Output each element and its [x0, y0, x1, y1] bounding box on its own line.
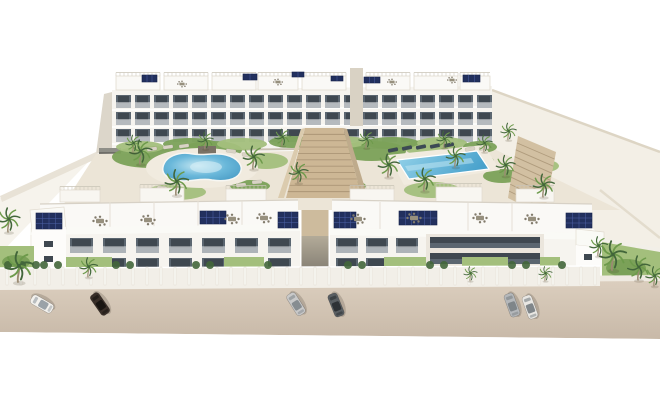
palm-crown-center	[470, 272, 472, 274]
window-opening	[384, 113, 395, 120]
balcony-balustrade	[287, 102, 302, 108]
terrace-chair	[408, 213, 410, 215]
palm-crown-center	[387, 163, 390, 166]
balcony-balustrade	[306, 102, 321, 108]
window-opening	[156, 113, 167, 120]
terrace-chair	[147, 223, 149, 225]
window-opening	[270, 113, 281, 120]
roof-terrace	[332, 200, 592, 233]
window-opening	[171, 259, 190, 268]
window-opening	[289, 113, 300, 120]
balcony-balustrade	[230, 102, 245, 108]
terrace-chair	[226, 214, 228, 216]
solar-panel	[142, 75, 157, 82]
balcony-balustrade	[363, 119, 378, 125]
terrace-chair	[395, 81, 397, 83]
palm-crown-center	[366, 138, 368, 140]
balcony-balustrade	[458, 102, 473, 108]
palm-crown-center	[7, 218, 10, 221]
palm-shadow	[468, 281, 474, 283]
terrace-chair	[277, 84, 279, 86]
window-opening	[479, 113, 490, 120]
fence-pillar	[370, 267, 372, 285]
balcony-balustrade	[169, 246, 192, 253]
balcony-balustrade	[366, 246, 388, 253]
fence-pillar	[76, 267, 78, 285]
penthouse-box	[60, 190, 100, 202]
terrace-table	[275, 81, 280, 84]
window-opening	[308, 113, 319, 120]
fence-pillar	[34, 267, 36, 285]
solar-panel	[364, 77, 380, 83]
terrace-chair	[99, 216, 101, 218]
window-opening	[403, 113, 414, 120]
terrace-chair	[352, 214, 354, 216]
balcony-balustrade	[192, 119, 207, 125]
window-opening	[251, 113, 262, 120]
terrace-table	[449, 79, 454, 82]
terrace-chair	[258, 213, 260, 215]
palm-crown-center	[444, 138, 446, 140]
balcony-balustrade	[306, 119, 321, 125]
fence-pillar	[398, 267, 400, 285]
back-building-passage-slot	[350, 68, 363, 126]
balcony-balustrade	[325, 102, 340, 108]
fence-pillar	[510, 267, 512, 285]
fence-pillar	[412, 267, 414, 285]
fence-pillar	[300, 267, 302, 285]
hedge-bush	[264, 261, 272, 269]
fence-pillar	[132, 267, 134, 285]
balcony-balustrade	[268, 102, 283, 108]
terrace-chair	[142, 215, 144, 217]
window-opening	[213, 130, 224, 137]
terrace-chair	[419, 217, 421, 219]
solar-panel-array	[566, 213, 592, 228]
fence-pillar	[538, 267, 540, 285]
balcony-balustrade	[70, 246, 93, 253]
window-opening	[403, 130, 414, 137]
balcony-balustrade	[211, 102, 226, 108]
balcony-balustrade	[268, 119, 283, 125]
terrace-chair	[237, 218, 239, 220]
window-opening	[232, 130, 243, 137]
window-opening	[308, 96, 319, 103]
terrace-chair	[524, 218, 526, 220]
window-opening	[441, 113, 452, 120]
fence-pillar	[258, 267, 260, 285]
balcony-balustrade	[477, 119, 492, 125]
balcony-balustrade	[401, 102, 416, 108]
fence-pillar	[62, 267, 64, 285]
fence-pillar	[552, 267, 554, 285]
solar-panel-array	[243, 74, 257, 80]
window-opening	[204, 239, 223, 247]
balcony-balustrade	[173, 119, 188, 125]
terrace-chair	[417, 220, 419, 222]
terrace-chair	[391, 78, 393, 80]
palm-shadow	[481, 151, 488, 154]
solar-panel	[278, 212, 298, 228]
palm-crown-center	[87, 265, 89, 267]
palm-crown-center	[454, 155, 457, 158]
fence-pillar	[566, 267, 568, 285]
terrace-chair	[231, 222, 233, 224]
window-opening	[156, 96, 167, 103]
terrace-chair	[151, 222, 153, 224]
terrace-chair	[447, 79, 449, 81]
window-opening	[251, 130, 262, 137]
terrace-table	[144, 218, 152, 222]
balcony-balustrade	[135, 119, 150, 125]
window-opening	[270, 96, 281, 103]
solar-panel-array	[292, 72, 304, 77]
terrace-chair	[357, 222, 359, 224]
window-opening	[237, 239, 256, 247]
balcony-balustrade	[249, 119, 264, 125]
terrace-chair	[181, 86, 183, 88]
terrace-table	[96, 219, 104, 223]
balcony-balustrade	[192, 102, 207, 108]
terrace-chair	[406, 217, 408, 219]
tower-window	[584, 254, 592, 260]
palm-crown-center	[282, 136, 284, 138]
fence-pillar	[230, 267, 232, 285]
palm-shadow	[502, 175, 511, 178]
window-opening	[118, 113, 129, 120]
fence-pillar	[6, 267, 8, 285]
balcony-balustrade	[235, 246, 258, 253]
balcony-balustrade	[211, 119, 226, 125]
terrace-chair	[147, 215, 149, 217]
fence-pillar	[454, 267, 456, 285]
balcony-balustrade	[325, 119, 340, 125]
balcony-balustrade	[382, 102, 397, 108]
hedge-bush	[426, 261, 434, 269]
window-strip-dark	[430, 237, 540, 243]
terrace-chair	[537, 218, 539, 220]
window-opening	[251, 96, 262, 103]
palm-crown-center	[611, 253, 615, 257]
terrace-chair	[256, 217, 258, 219]
balcony-balustrade	[439, 102, 454, 108]
fence-pillar	[188, 267, 190, 285]
terrace-chair	[280, 83, 282, 85]
fence-pillar	[524, 267, 526, 285]
window-opening	[460, 130, 471, 137]
palm-crown-center	[637, 266, 640, 269]
hedge-bush	[40, 261, 48, 269]
balcony-balustrade	[268, 246, 291, 253]
window-opening	[289, 96, 300, 103]
balcony-balustrade	[230, 119, 245, 125]
terrace-chair	[178, 81, 180, 83]
terrace-table	[228, 217, 236, 221]
terrace-chair	[94, 216, 96, 218]
balcony-balustrade	[477, 102, 492, 108]
terrace-chair	[455, 79, 457, 81]
balcony-balustrade	[154, 119, 169, 125]
palm-shadow	[363, 147, 370, 150]
hedge-bush	[32, 261, 40, 269]
window-opening	[398, 239, 416, 247]
fence-pillar	[594, 267, 596, 285]
palm-crown-center	[139, 150, 142, 153]
terrace-chair	[413, 221, 415, 223]
balcony-balustrade	[439, 119, 454, 125]
terrace-chair	[263, 213, 265, 215]
terrace-chair	[361, 221, 363, 223]
sun-lounger	[236, 183, 246, 187]
terrace-chair	[92, 220, 94, 222]
hedge-bush	[558, 261, 566, 269]
hedge-bush	[54, 261, 62, 269]
palm-shadow	[384, 176, 394, 179]
window-opening	[118, 130, 129, 137]
window-opening	[213, 113, 224, 120]
palm-shadow	[4, 231, 14, 235]
terrace-chair	[350, 218, 352, 220]
terrace-chair	[273, 81, 275, 83]
window-opening	[422, 130, 433, 137]
fence-pillar	[482, 267, 484, 285]
penthouse-box	[436, 187, 482, 202]
balcony-balustrade	[249, 102, 264, 108]
solar-panel-array	[364, 77, 380, 83]
window-opening	[118, 96, 129, 103]
fence-pillar	[580, 267, 582, 285]
window-opening	[422, 96, 433, 103]
terrace-chair	[387, 81, 389, 83]
window-opening	[460, 113, 471, 120]
fence-pillar	[272, 267, 274, 285]
terrace-chair	[531, 222, 533, 224]
palm-crown-center	[17, 264, 21, 268]
back-building-side-wall	[96, 92, 112, 154]
balcony-balustrade	[287, 119, 302, 125]
balcony-balustrade	[116, 119, 131, 125]
tower-window	[44, 256, 53, 262]
roof-terrace-box	[164, 76, 208, 90]
solar-panel-array	[142, 75, 157, 82]
balcony-balustrade	[136, 246, 159, 253]
palm-crown-center	[545, 272, 547, 274]
fence-pillar	[328, 267, 330, 285]
palm-crown-center	[133, 142, 135, 144]
terrace-chair	[269, 217, 271, 219]
hedge-bush	[344, 261, 352, 269]
terrace-chair	[263, 221, 265, 223]
terrace-chair	[231, 214, 233, 216]
palm-crown-center	[504, 164, 507, 167]
window-opening	[403, 96, 414, 103]
window-opening	[460, 96, 471, 103]
palm-shadow	[607, 269, 619, 273]
terrace-chair	[105, 220, 107, 222]
fence-pillar	[118, 267, 120, 285]
hedge-bush	[126, 261, 134, 269]
solar-panel-array	[278, 212, 298, 228]
window-opening	[137, 130, 148, 137]
terrace-chair	[235, 221, 237, 223]
balcony-balustrade	[336, 246, 358, 253]
window-opening	[384, 96, 395, 103]
balcony-balustrade	[363, 102, 378, 108]
terrace-chair	[388, 79, 390, 81]
fence-pillar	[342, 267, 344, 285]
terrace-chair	[181, 80, 183, 82]
window-opening	[175, 130, 186, 137]
window-opening	[105, 239, 124, 247]
hedge-bush	[358, 261, 366, 269]
fence-pillar	[356, 267, 358, 285]
terrace-chair	[153, 219, 155, 221]
balcony-balustrade	[458, 119, 473, 125]
terrace-chair	[281, 81, 283, 83]
rendering-canvas	[0, 0, 660, 403]
window-opening	[232, 96, 243, 103]
solar-panel-array	[200, 211, 226, 224]
terrace-chair	[394, 83, 396, 85]
palm-crown-center	[484, 142, 486, 144]
balcony-balustrade	[103, 246, 126, 253]
terrace-chair	[485, 217, 487, 219]
palm-shadow	[452, 166, 461, 169]
palm-shadow	[441, 147, 448, 150]
hedge-bush	[112, 261, 120, 269]
window-opening	[327, 96, 338, 103]
palm-crown-center	[175, 180, 178, 183]
fence-pillar	[216, 267, 218, 285]
palm-shadow	[595, 255, 603, 258]
fence-pillar	[314, 267, 316, 285]
terrace-chair	[451, 76, 453, 78]
hedge-bush	[206, 261, 214, 269]
terrace-table	[260, 216, 268, 220]
palm-shadow	[651, 285, 659, 288]
terrace-chair	[274, 79, 276, 81]
window-opening	[156, 130, 167, 137]
fence-pillar	[286, 267, 288, 285]
hedge-bush	[440, 261, 448, 269]
window-opening	[137, 113, 148, 120]
terrace-chair	[526, 214, 528, 216]
palm-crown-center	[252, 155, 255, 158]
window-opening	[213, 96, 224, 103]
fence-pillar	[48, 267, 50, 285]
fence-pillar	[384, 267, 386, 285]
terrace-chair	[140, 219, 142, 221]
window-opening	[270, 239, 289, 247]
terrace-chair	[413, 213, 415, 215]
fence-pillar	[174, 267, 176, 285]
palm-crown-center	[423, 177, 426, 180]
palm-crown-center	[597, 244, 599, 246]
terrace-chair	[535, 221, 537, 223]
terrace-table	[179, 83, 184, 86]
hedge-bush	[522, 261, 530, 269]
pool-highlight	[190, 161, 222, 173]
solar-panel-array	[36, 213, 62, 229]
window-opening	[365, 113, 376, 120]
palm-shadow	[130, 151, 137, 154]
terrace-chair	[472, 217, 474, 219]
window-opening	[72, 239, 91, 247]
terrace-chair	[103, 223, 105, 225]
terrace-chair	[474, 213, 476, 215]
fence-pillar	[440, 267, 442, 285]
front-lawn	[224, 257, 264, 268]
fence-pillar	[160, 267, 162, 285]
terrace-chair	[479, 213, 481, 215]
window-opening	[422, 113, 433, 120]
palm-shadow	[202, 148, 209, 151]
balcony-balustrade	[135, 102, 150, 108]
balcony-balustrade	[154, 102, 169, 108]
terrace-chair	[357, 214, 359, 216]
terrace-chair	[99, 224, 101, 226]
palm-shadow	[543, 281, 549, 283]
window-opening	[175, 96, 186, 103]
solar-panel-array	[334, 212, 356, 228]
terrace-table	[389, 81, 394, 84]
window-opening	[441, 96, 452, 103]
fence-pillar	[496, 267, 498, 285]
window-opening	[479, 130, 490, 137]
terrace-chair	[185, 83, 187, 85]
terrace-chair	[483, 220, 485, 222]
balcony-balustrade	[173, 102, 188, 108]
palm-shadow	[420, 190, 430, 193]
balcony-balustrade	[420, 102, 435, 108]
penthouse-box	[516, 189, 554, 202]
sun-lounger	[252, 180, 262, 184]
solar-panel-array	[331, 76, 343, 81]
window-opening	[327, 113, 338, 120]
window-opening	[194, 96, 205, 103]
terrace-chair	[363, 218, 365, 220]
terrace-chair	[224, 218, 226, 220]
palm-shadow	[136, 163, 146, 167]
window-opening	[365, 96, 376, 103]
window-opening	[232, 113, 243, 120]
window-opening	[138, 259, 157, 268]
hedge-bush	[508, 261, 516, 269]
tower-window	[44, 241, 53, 247]
palm-shadow	[172, 194, 183, 198]
fence-pillar	[426, 267, 428, 285]
palm-shadow	[13, 281, 26, 286]
balcony-balustrade	[401, 119, 416, 125]
terrace-chair	[391, 84, 393, 86]
palm-crown-center	[297, 171, 300, 174]
window-opening	[137, 96, 148, 103]
foreground	[0, 332, 660, 403]
terrace-table	[528, 217, 536, 221]
terrace-chair	[479, 221, 481, 223]
terrace-table	[476, 216, 484, 220]
terrace-chair	[448, 77, 450, 79]
terrace-chair	[184, 85, 186, 87]
balcony-balustrade	[116, 102, 131, 108]
passage-back-wall	[301, 210, 329, 236]
architectural-rendering	[0, 0, 660, 403]
terrace-table	[410, 216, 418, 220]
palm-shadow	[634, 279, 644, 283]
balcony-balustrade	[396, 246, 418, 253]
terrace-chair	[451, 82, 453, 84]
window-opening	[479, 96, 490, 103]
